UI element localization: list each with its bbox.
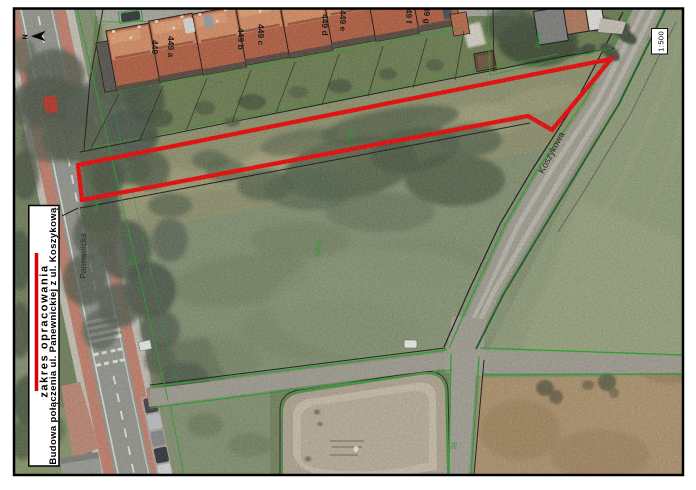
svg-text:N: N — [23, 34, 30, 39]
svg-text:1:500: 1:500 — [656, 31, 665, 52]
svg-text:zakres opracowania: zakres opracowania — [39, 264, 51, 397]
